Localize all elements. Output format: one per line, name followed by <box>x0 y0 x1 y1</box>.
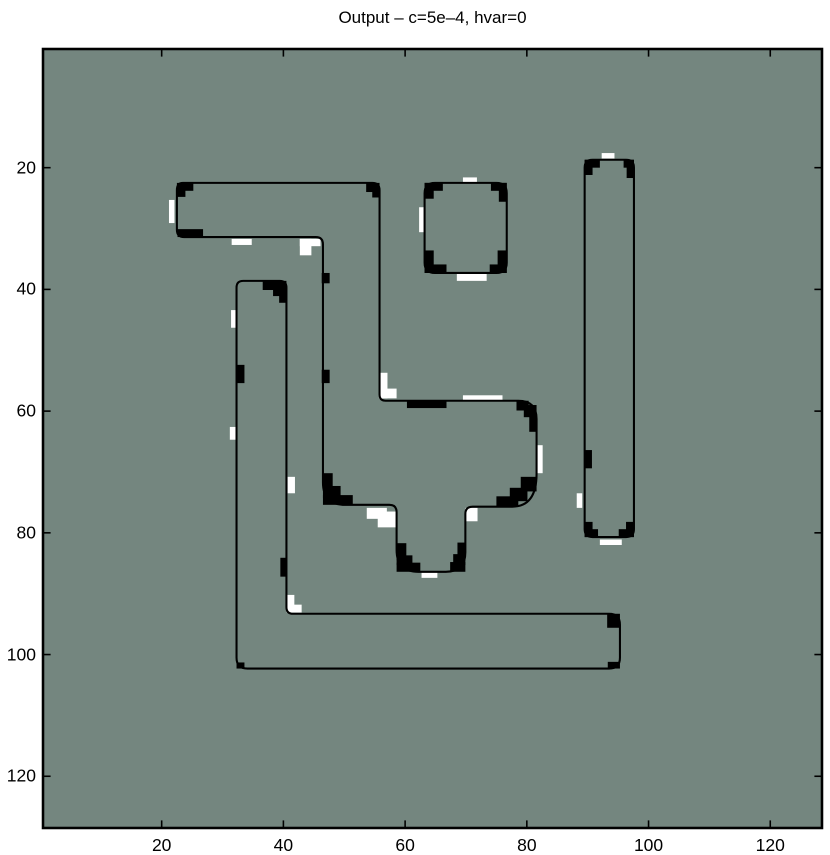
x-tick-label: 20 <box>152 835 171 855</box>
image-background <box>43 49 822 828</box>
y-tick-label: 60 <box>0 401 36 422</box>
y-tick-label: 120 <box>0 766 36 787</box>
x-tick-label: 80 <box>517 835 536 855</box>
plot-title: Output – c=5e–4, hvar=0 <box>43 8 822 28</box>
plot-svg <box>43 49 822 828</box>
x-tick-label: 40 <box>274 835 293 855</box>
x-tick-label: 100 <box>634 835 663 855</box>
y-tick-label: 80 <box>0 522 36 543</box>
y-tick-label: 40 <box>0 279 36 300</box>
figure-canvas: Output – c=5e–4, hvar=0 2040608010012020… <box>0 0 830 855</box>
plot-area <box>43 49 822 828</box>
x-tick-label: 120 <box>756 835 785 855</box>
y-tick-label: 20 <box>0 157 36 178</box>
y-tick-label: 100 <box>0 644 36 665</box>
x-tick-label: 60 <box>395 835 414 855</box>
